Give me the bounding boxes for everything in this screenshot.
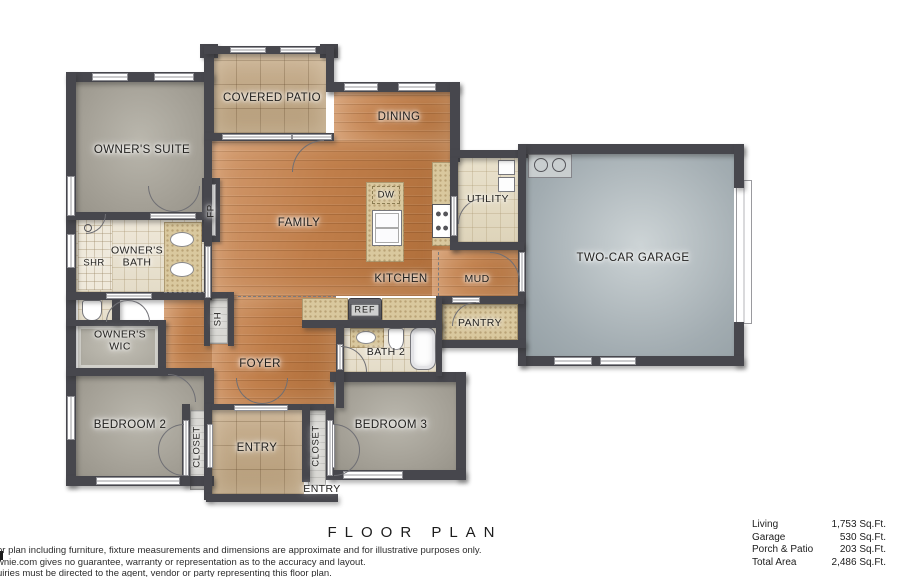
wall [204,368,214,408]
wall [302,320,442,328]
kitchen-sink-fixture [372,210,402,246]
area-value: 1,753 Sq.Ft. [832,519,886,532]
wall [204,292,210,346]
counter-left-fixture [302,298,348,322]
label-owners-wic: OWNER'S WIC [94,329,146,354]
area-row-living: Living 1,753 Sq.Ft. [752,519,886,532]
area-label: Living [752,519,778,532]
window [230,47,266,53]
window [67,176,75,216]
wall [456,372,466,480]
label-mud: MUD [464,273,489,285]
dryer-fixture [498,177,515,192]
window [344,83,378,91]
opening [438,252,439,296]
window [554,357,592,365]
disclaimer-line-2: wnie.com gives no guarantee, warranty or… [0,557,366,568]
label-utility: UTILITY [467,193,509,205]
window [222,134,292,140]
wall [734,144,744,188]
bathtub-fixture [410,327,436,370]
counter-right-fixture [382,298,436,322]
door-swing [128,300,150,322]
label-bath-2: BATH 2 [367,346,405,358]
wall [66,368,212,376]
wall [518,144,744,154]
wall [302,404,310,482]
label-owners-bath: OWNER'S BATH [111,245,163,270]
label-closet-right: CLOSET [310,425,321,467]
window [96,477,180,485]
window [343,471,403,479]
label-closet-left: CLOSET [191,426,202,468]
label-entry: ENTRY [237,442,278,456]
range-fixture [432,204,452,238]
window [327,420,333,476]
wall [436,296,524,304]
wall [450,242,524,250]
opening [164,292,206,293]
sink-fixture [170,262,194,277]
label-ref: REF [351,304,380,317]
area-table: Living 1,753 Sq.Ft. Garage 530 Sq.Ft. Po… [752,519,886,569]
area-value: 530 Sq.Ft. [840,532,886,545]
wall [206,494,338,502]
disclaimer-line-3: uiries must be directed to the agent, ve… [0,568,332,577]
area-row-porch-patio: Porch & Patio 203 Sq.Ft. [752,544,886,557]
window [67,396,75,440]
window [92,73,128,81]
window [451,196,457,236]
window [600,357,636,365]
wall [204,141,212,213]
floor-plan-drawing: OWNER'S SUITECOVERED PATIODININGFAMILYUT… [0,0,900,577]
burner-fixture [552,158,566,172]
area-label: Porch & Patio [752,544,813,557]
area-label: Garage [752,532,785,545]
label-bedroom-3: BEDROOM 3 [355,419,428,433]
garage-door-fixture [736,180,752,324]
window [280,47,316,53]
label-shr: SHR [83,257,104,268]
window [234,405,288,411]
label-pantry: PANTRY [458,317,502,329]
window [154,73,194,81]
label-family: FAMILY [278,217,320,231]
wall [436,340,526,348]
opening [238,296,336,297]
label-entry-porch: ENTRY [303,483,340,495]
wall [330,372,466,382]
label-covered-patio: COVERED PATIO [223,92,321,106]
sink-fixture [170,232,194,247]
area-value: 2,486 Sq.Ft. [832,557,886,570]
wall [228,292,234,346]
window [150,213,196,219]
label-fp: FP [205,204,216,217]
floor-plan-page: OWNER'S SUITECOVERED PATIODININGFAMILYUT… [0,0,900,577]
area-label: Total Area [752,557,796,570]
wall [450,150,528,158]
label-sh: SH [212,312,223,326]
wall [436,300,442,376]
window [67,234,75,268]
area-row-garage: Garage 530 Sq.Ft. [752,532,886,545]
window [398,83,436,91]
burner-fixture [534,158,548,172]
window [519,252,525,292]
label-bedroom-2: BEDROOM 2 [94,419,167,433]
sink-fixture [356,331,376,344]
label-owners-suite: OWNER'S SUITE [94,144,190,158]
label-dw: DW [378,189,395,200]
window [205,246,211,298]
wall [204,46,214,141]
label-kitchen: KITCHEN [374,273,427,287]
floor-plan-title: FLOOR PLAN [0,524,830,541]
area-value: 203 Sq.Ft. [840,544,886,557]
washer-fixture [498,160,515,175]
toilet-fixture [82,300,102,321]
label-foyer: FOYER [239,358,281,372]
window [207,424,213,468]
label-dining: DINING [378,111,421,125]
disclaimer-line-1: or plan including furniture, fixture mea… [0,545,482,556]
window [106,293,152,299]
label-two-car-garage: TWO-CAR GARAGE [577,252,690,266]
area-row-total: Total Area 2,486 Sq.Ft. [752,557,886,570]
window [292,134,332,140]
